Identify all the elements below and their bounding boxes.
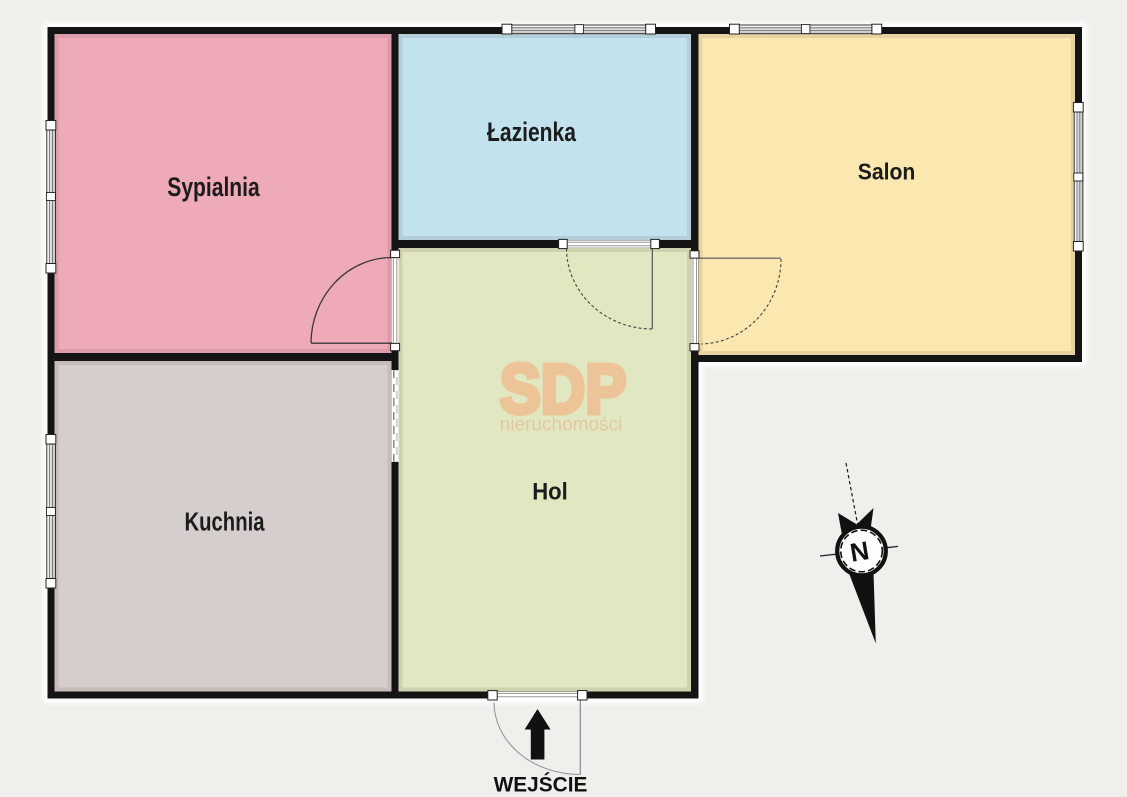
- svg-text:Salon: Salon: [858, 158, 916, 184]
- svg-text:Hol: Hol: [532, 478, 568, 505]
- svg-text:Kuchnia: Kuchnia: [185, 507, 266, 536]
- svg-text:Łazienka: Łazienka: [487, 118, 576, 148]
- svg-text:nieruchomości: nieruchomości: [500, 415, 623, 436]
- svg-text:Sypialnia: Sypialnia: [167, 173, 260, 203]
- svg-text:WEJŚCIE: WEJŚCIE: [494, 771, 588, 796]
